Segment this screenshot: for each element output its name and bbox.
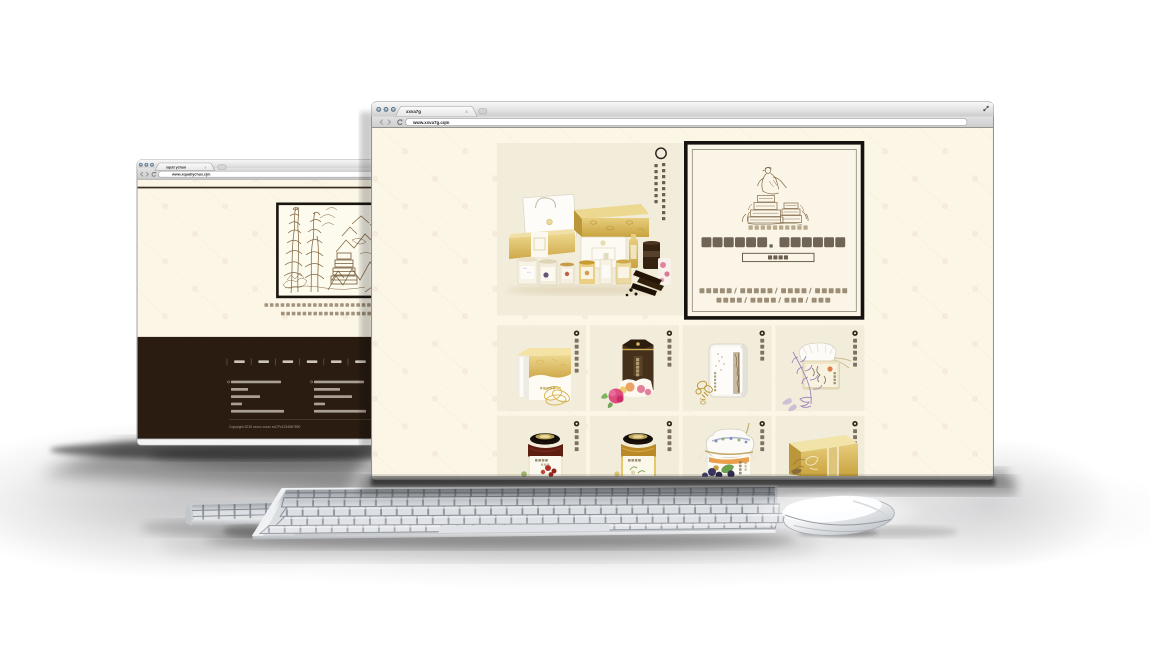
svg-text:www.xxva7g.cqm: www.xxva7g.cqm [412,120,450,125]
svg-text:xquti ychun: xquti ychun [166,165,186,169]
svg-text:x: x [205,165,207,169]
svg-text:xxva7g: xxva7g [406,109,421,114]
svg-text:Copyright 2015 xxxxx xxxxx xxC: Copyright 2015 xxxxx xxxxx xxCPx12345678… [229,425,301,429]
svg-text:www.xquatiychux.cjm: www.xquatiychux.cjm [171,173,211,177]
